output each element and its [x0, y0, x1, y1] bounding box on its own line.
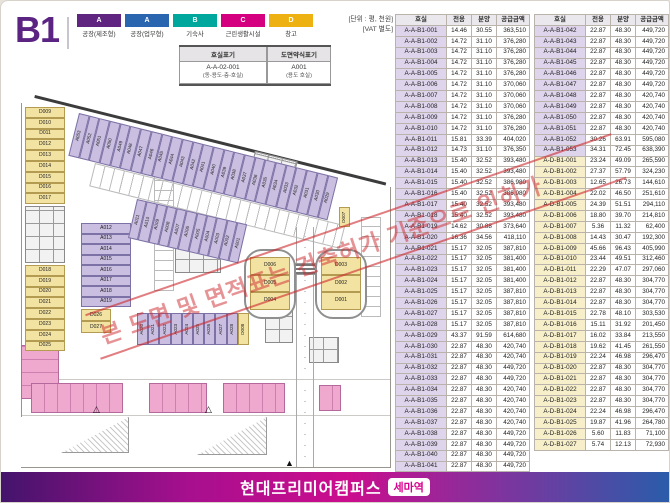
value-cell: 387,810 [497, 298, 530, 309]
table-row: A-D-B1-02422.2446.98296,470 [535, 407, 669, 418]
value-cell: 31.10 [472, 69, 497, 80]
value-cell: 48.30 [611, 47, 636, 58]
room-id-cell: A-A-B1-030 [396, 341, 447, 352]
value-cell: 32.05 [472, 287, 497, 298]
value-cell: 14.72 [447, 69, 472, 80]
value-cell: 381,400 [497, 276, 530, 287]
value-cell: 418,110 [497, 232, 530, 243]
room-label: D027 [90, 325, 102, 330]
value-cell: 48.30 [472, 439, 497, 450]
room-label: A018 [100, 289, 112, 294]
table-row: A-D-B1-01615.1131.92201,450 [535, 319, 669, 330]
room-id-cell: A-D-B1-026 [535, 428, 586, 439]
value-cell: 62,400 [636, 221, 669, 232]
room-label: D010 [39, 121, 51, 126]
table-row: A-A-B1-05122.8748.30420,740 [535, 123, 669, 134]
room-label: D023 [39, 322, 51, 327]
value-cell: 449,720 [497, 439, 530, 450]
plan-room-D004: D004 [250, 292, 290, 310]
value-cell: 192,300 [636, 232, 669, 243]
room-id-cell: A-A-B1-046 [535, 69, 586, 80]
room-label: A027 [219, 324, 224, 335]
room-label: A009 [154, 219, 161, 230]
room-id-cell: A-D-B1-016 [535, 319, 586, 330]
table-row: A-A-B1-04922.8748.30420,740 [535, 102, 669, 113]
value-cell: 387,810 [497, 243, 530, 254]
value-cell: 22.87 [447, 450, 472, 461]
value-cell: 30.88 [472, 221, 497, 232]
room-id-cell: A-A-B1-021 [396, 243, 447, 254]
value-cell: 48.30 [611, 25, 636, 36]
table-row: A-D-B1-0075.3611.3262,400 [535, 221, 669, 232]
value-cell: 27.37 [586, 167, 611, 178]
room-id-cell: A-A-B1-034 [396, 385, 447, 396]
value-cell: 46.50 [611, 189, 636, 200]
room-label: D003 [335, 263, 347, 268]
value-cell: 22.87 [447, 417, 472, 428]
crosswalk [294, 263, 316, 275]
value-cell: 14.62 [447, 221, 472, 232]
room-label: A032 [293, 184, 300, 196]
entrance-marker-2: △ [205, 405, 212, 414]
road-line-2 [21, 415, 391, 416]
value-cell: 48.30 [472, 385, 497, 396]
entrance-marker-1: △ [93, 405, 100, 414]
bottom-strip-a-group: A020A021A022A023A024A025A026A027A028 [137, 313, 238, 345]
legend-color-box: D [269, 14, 313, 27]
value-cell: 48.10 [611, 309, 636, 320]
room-id-cell: A-A-B1-016 [396, 189, 447, 200]
value-cell: 46.98 [611, 407, 636, 418]
retail-block-3 [223, 383, 285, 413]
table-row: A-A-B1-01415.4032.52393,480 [396, 167, 530, 178]
value-cell: 449,720 [636, 58, 669, 69]
plan-room-A026: A026 [204, 313, 215, 345]
room-label: D008 [241, 324, 246, 335]
room-id-cell: A-A-B1-042 [535, 25, 586, 36]
room-label: A004 [204, 230, 211, 241]
room-id-cell: A-A-B1-003 [396, 47, 447, 58]
table-row: A-A-B1-03322.8748.30449,720 [396, 374, 530, 385]
value-cell: 71,100 [636, 428, 669, 439]
room-label: D007 [342, 212, 347, 223]
center-col-a-group: A012A013A014A015A016A017A018A019 [81, 223, 131, 307]
plan-room-D007: D007 [339, 207, 350, 227]
plan-room-A012: A012 [81, 223, 131, 234]
column-header: 호실 [535, 15, 586, 26]
unit-note-line1: [단위 : 평, 천원] [329, 15, 393, 25]
room-label: D002 [335, 281, 347, 286]
value-cell: 449,720 [636, 80, 669, 91]
table-row: A-D-B1-00618.8039.70214,810 [535, 211, 669, 222]
value-cell: 420,740 [497, 417, 530, 428]
plan-room-D021: D021 [25, 297, 65, 308]
table-row: A-A-B1-02715.1732.05387,810 [396, 309, 530, 320]
room-id-cell: A-A-B1-036 [396, 407, 447, 418]
room-label: A052 [86, 132, 93, 144]
retail-block-1 [31, 383, 123, 413]
value-cell: 34.31 [586, 145, 611, 156]
legend-label: 공장(제조형) [77, 29, 121, 38]
plan-room-D018: D018 [25, 265, 65, 276]
value-cell: 15.40 [447, 156, 472, 167]
table-row: A-A-B1-04722.8748.30449,720 [535, 80, 669, 91]
value-cell: 32.52 [472, 211, 497, 222]
right-boundary [390, 187, 391, 468]
value-cell: 48.30 [472, 352, 497, 363]
value-cell: 14.72 [447, 58, 472, 69]
room-id-cell: A-D-B1-006 [535, 211, 586, 222]
room-label: A005 [194, 228, 201, 239]
legend-item: C근린생활시설 [221, 14, 265, 38]
table-row: A-A-B1-02115.1732.05387,810 [396, 243, 530, 254]
room-id-cell: A-A-B1-012 [396, 145, 447, 156]
value-cell: 30.47 [611, 232, 636, 243]
room-label: A008 [164, 221, 171, 232]
plan-room-D005: D005 [250, 275, 290, 293]
ramp-left [61, 417, 129, 453]
room-id-cell: A-A-B1-043 [535, 36, 586, 47]
value-cell: 48.30 [611, 363, 636, 374]
value-cell: 304,770 [636, 363, 669, 374]
value-cell: 48.30 [472, 428, 497, 439]
value-cell: 420,740 [636, 102, 669, 113]
value-cell: 49.51 [611, 254, 636, 265]
value-cell: 420,740 [636, 113, 669, 124]
value-cell: 22.87 [586, 113, 611, 124]
retail-block-4 [319, 385, 341, 411]
small-d-group: D026D027 [81, 309, 111, 333]
plan-room-A025: A025 [193, 313, 204, 345]
value-cell: 48.30 [611, 374, 636, 385]
notation-header-room: 호실표기 [179, 47, 267, 62]
room-id-cell: A-D-B1-021 [535, 374, 586, 385]
floor-plan: △ △ ▲ COURTYARD D009D010D011D012D013D014… [9, 87, 393, 474]
room-id-cell: A-D-B1-003 [535, 178, 586, 189]
room-id-cell: A-D-B1-019 [535, 352, 586, 363]
bottom-strip-d-group: D008 [238, 313, 249, 345]
value-cell: 387,810 [497, 309, 530, 320]
value-cell: 387,810 [497, 287, 530, 298]
value-cell: 46.98 [611, 352, 636, 363]
room-id-cell: A-A-B1-029 [396, 330, 447, 341]
value-cell: 303,530 [636, 309, 669, 320]
price-table-right: 호실전용분양공급금액A-A-B1-04222.8748.30449,720A-A… [534, 14, 669, 451]
value-cell: 48.30 [611, 58, 636, 69]
value-cell: 22.87 [586, 374, 611, 385]
value-cell: 43.37 [447, 330, 472, 341]
legend-label: 근린생활시설 [221, 29, 265, 38]
project-title: 현대프리미어캠퍼스 [240, 475, 381, 499]
value-cell: 48.30 [472, 363, 497, 374]
value-cell: 23.24 [586, 156, 611, 167]
value-cell: 304,770 [636, 374, 669, 385]
room-label: A002 [224, 235, 231, 246]
plan-room-D006: D006 [250, 257, 290, 275]
value-cell: 420,740 [497, 352, 530, 363]
value-cell: 23.44 [586, 254, 611, 265]
value-cell: 18.80 [586, 211, 611, 222]
plan-room-D026: D026 [81, 309, 111, 321]
room-id-cell: A-A-B1-051 [535, 123, 586, 134]
ramp-center [197, 417, 267, 455]
value-cell: 22.29 [586, 265, 611, 276]
table-row: A-A-B1-00514.7231.10376,280 [396, 69, 530, 80]
value-cell: 47.07 [611, 265, 636, 276]
room-label: A031 [303, 187, 310, 199]
plan-room-A016: A016 [81, 265, 131, 276]
legend-label: 기숙사 [173, 29, 217, 38]
room-label: D005 [264, 281, 276, 286]
room-id-cell: A-A-B1-047 [535, 80, 586, 91]
table-row: A-A-B1-05230.2663.91595,080 [535, 134, 669, 145]
room-id-cell: A-D-B1-014 [535, 298, 586, 309]
notation-header-abbrev: 도면약식표기 [267, 47, 331, 62]
value-cell: 22.24 [586, 407, 611, 418]
room-id-cell: A-A-B1-010 [396, 123, 447, 134]
value-cell: 638,390 [636, 145, 669, 156]
road-line-1 [21, 379, 391, 380]
value-cell: 420,740 [636, 123, 669, 134]
room-id-cell: A-A-B1-013 [396, 156, 447, 167]
room-id-cell: A-A-B1-014 [396, 167, 447, 178]
room-id-cell: A-D-B1-013 [535, 287, 586, 298]
value-cell: 22.87 [586, 91, 611, 102]
room-label: A033 [283, 182, 290, 194]
value-cell: 14.72 [447, 123, 472, 134]
table-row: A-A-B1-04422.8748.30449,720 [535, 47, 669, 58]
table-row: A-A-B1-02615.1732.05387,810 [396, 298, 530, 309]
legend-item: A공장(업무형) [125, 14, 169, 38]
value-cell: 32.05 [472, 319, 497, 330]
room-label: A029 [324, 192, 331, 204]
value-cell: 32.05 [472, 298, 497, 309]
value-cell: 14.72 [447, 80, 472, 91]
room-id-cell: A-A-B1-031 [396, 352, 447, 363]
room-id-cell: A-A-B1-017 [396, 200, 447, 211]
value-cell: 31.10 [472, 47, 497, 58]
price-table-left: 호실전용분양공급금액A-A-B1-00114.4630.55363,510A-A… [395, 14, 530, 472]
room-label: A020 [140, 324, 145, 335]
legend-color-box: A [77, 14, 121, 27]
room-id-cell: A-D-B1-011 [535, 265, 586, 276]
room-id-cell: A-D-B1-012 [535, 276, 586, 287]
value-cell: 15.17 [447, 276, 472, 287]
room-label: A038 [231, 169, 238, 181]
room-id-cell: A-A-B1-006 [396, 80, 447, 91]
value-cell: 14.72 [447, 47, 472, 58]
value-cell: 213,550 [636, 330, 669, 341]
value-cell: 14.43 [586, 232, 611, 243]
room-id-cell: A-A-B1-048 [535, 91, 586, 102]
room-label: A023 [174, 324, 179, 335]
value-cell: 296,470 [636, 407, 669, 418]
table-row: A-D-B1-02222.8748.30304,770 [535, 385, 669, 396]
value-cell: 312,460 [636, 254, 669, 265]
plan-room-D024: D024 [25, 330, 65, 341]
value-cell: 72.45 [611, 145, 636, 156]
value-cell: 304,770 [636, 276, 669, 287]
room-id-cell: A-A-B1-027 [396, 309, 447, 320]
table-row: A-A-B1-01315.4032.52393,480 [396, 156, 530, 167]
room-id-cell: A-D-B1-017 [535, 330, 586, 341]
room-id-cell: A-D-B1-022 [535, 385, 586, 396]
room-label: D012 [39, 142, 51, 147]
value-cell: 393,480 [497, 167, 530, 178]
value-cell: 15.40 [447, 189, 472, 200]
value-cell: 304,770 [636, 298, 669, 309]
value-cell: 33.39 [472, 134, 497, 145]
room-label: A024 [185, 324, 190, 335]
table-row: A-D-B1-00422.0246.50251,610 [535, 189, 669, 200]
room-id-cell: A-D-B1-010 [535, 254, 586, 265]
value-cell: 49.09 [611, 156, 636, 167]
table-row: A-D-B1-01716.0233.84213,550 [535, 330, 669, 341]
room-label: A028 [230, 324, 235, 335]
table-row: A-A-B1-04122.8748.30449,720 [396, 461, 530, 472]
value-cell: 31.92 [611, 319, 636, 330]
table-row: A-A-B1-03422.8748.30420,740 [396, 385, 530, 396]
room-label: A006 [184, 225, 191, 236]
room-label: A053 [75, 130, 82, 142]
value-cell: 48.30 [472, 374, 497, 385]
room-label: A019 [100, 299, 112, 304]
plan-room-A020: A020 [137, 313, 148, 345]
table-row: A-D-B1-00312.6526.73144,610 [535, 178, 669, 189]
value-cell: 420,740 [497, 396, 530, 407]
room-id-cell: A-A-B1-005 [396, 69, 447, 80]
value-cell: 32.52 [472, 200, 497, 211]
value-cell: 261,550 [636, 341, 669, 352]
room-label: A049 [117, 140, 124, 152]
plan-room-D009: D009 [25, 107, 65, 118]
room-id-cell: A-D-B1-004 [535, 189, 586, 200]
left-bottom-d-group: D018D019D020D021D022D023D024D025 [25, 265, 65, 351]
room-id-cell: A-D-B1-024 [535, 407, 586, 418]
room-id-cell: A-A-B1-018 [396, 211, 447, 222]
room-id-cell: A-D-B1-001 [535, 156, 586, 167]
value-cell: 15.40 [447, 200, 472, 211]
table-row: A-A-B1-03522.8748.30420,740 [396, 396, 530, 407]
room-id-cell: A-A-B1-050 [535, 113, 586, 124]
legend-label: 창고 [269, 29, 313, 38]
room-label: D001 [335, 298, 347, 303]
room-id-cell: A-A-B1-020 [396, 232, 447, 243]
value-cell: 22.87 [586, 69, 611, 80]
table-row: A-D-B1-01422.8748.30304,770 [535, 298, 669, 309]
entrance-marker-main: ▲ [285, 459, 294, 468]
table-row: A-A-B1-03922.8748.30449,720 [396, 439, 530, 450]
value-cell: 214,810 [636, 211, 669, 222]
room-id-cell: A-A-B1-002 [396, 36, 447, 47]
column-header: 호실 [396, 15, 447, 26]
value-cell: 48.30 [611, 102, 636, 113]
plan-room-A027: A027 [215, 313, 226, 345]
room-id-cell: A-D-B1-018 [535, 341, 586, 352]
value-cell: 324,230 [636, 167, 669, 178]
room-label: A034 [272, 179, 279, 191]
table-row: A-A-B1-04622.8748.30449,720 [535, 69, 669, 80]
room-label: A044 [169, 153, 176, 165]
room-id-cell: A-A-B1-025 [396, 287, 447, 298]
room-label: D011 [39, 131, 51, 136]
value-cell: 15.11 [586, 319, 611, 330]
room-label: A037 [241, 171, 248, 183]
plan-room-A018: A018 [81, 286, 131, 297]
small-d-right-group: D007 [339, 207, 350, 227]
room-id-cell: A-A-B1-045 [535, 58, 586, 69]
value-cell: 32.05 [472, 243, 497, 254]
table-row: A-D-B1-00123.2449.09265,590 [535, 156, 669, 167]
plan-room-D025: D025 [25, 341, 65, 352]
room-id-cell: A-A-B1-039 [396, 439, 447, 450]
table-row: A-A-B1-03122.8748.30420,740 [396, 352, 530, 363]
value-cell: 381,400 [497, 265, 530, 276]
room-id-cell: A-A-B1-007 [396, 91, 447, 102]
value-cell: 22.87 [447, 428, 472, 439]
room-label: A048 [127, 143, 134, 155]
plan-room-A028: A028 [227, 313, 238, 345]
room-id-cell: A-A-B1-049 [535, 102, 586, 113]
plan-room-D012: D012 [25, 139, 65, 150]
value-cell: 12.65 [586, 178, 611, 189]
value-cell: 31.10 [472, 145, 497, 156]
station-badge: 세마역 [388, 478, 430, 496]
table-row: A-A-B1-03022.8748.30420,740 [396, 341, 530, 352]
value-cell: 22.87 [586, 276, 611, 287]
value-cell: 34.56 [472, 232, 497, 243]
plan-room-D001: D001 [321, 292, 361, 310]
plan-room-D002: D002 [321, 275, 361, 293]
value-cell: 304,770 [636, 396, 669, 407]
table-row: A-A-B1-03822.8748.30449,720 [396, 428, 530, 439]
right-oval-d-group: D003D002D001 [321, 257, 361, 310]
value-cell: 376,280 [497, 113, 530, 124]
value-cell: 51.51 [611, 200, 636, 211]
column-header: 분양 [611, 15, 636, 26]
plan-room-D008: D008 [238, 313, 249, 345]
value-cell: 48.30 [611, 80, 636, 91]
value-cell: 31.10 [472, 36, 497, 47]
room-label: A025 [196, 324, 201, 335]
room-id-cell: A-A-B1-024 [396, 276, 447, 287]
value-cell: 31.10 [472, 113, 497, 124]
table-row: A-D-B1-01922.2446.98296,470 [535, 352, 669, 363]
value-cell: 376,280 [497, 58, 530, 69]
table-row: A-A-B1-01815.4032.52393,480 [396, 211, 530, 222]
value-cell: 48.30 [611, 113, 636, 124]
room-label: D026 [90, 313, 102, 318]
value-cell: 48.30 [611, 69, 636, 80]
value-cell: 15.81 [447, 134, 472, 145]
value-cell: 32.52 [472, 167, 497, 178]
value-cell: 449,720 [636, 25, 669, 36]
value-cell: 22.87 [447, 439, 472, 450]
value-cell: 251,610 [636, 189, 669, 200]
value-cell: 32.05 [472, 254, 497, 265]
legend-item: B기숙사 [173, 14, 217, 38]
notation-value-abbrev: A001(용도 호실) [267, 62, 331, 84]
value-cell: 449,720 [497, 461, 530, 472]
legend-item: D창고 [269, 14, 313, 38]
column-header: 전용 [447, 15, 472, 26]
value-cell: 449,720 [497, 428, 530, 439]
room-label: A014 [100, 247, 112, 252]
room-id-cell: A-A-B1-044 [535, 47, 586, 58]
table-row: A-D-B1-02122.8748.30304,770 [535, 374, 669, 385]
value-cell: 595,080 [636, 134, 669, 145]
value-cell: 363,510 [497, 25, 530, 36]
